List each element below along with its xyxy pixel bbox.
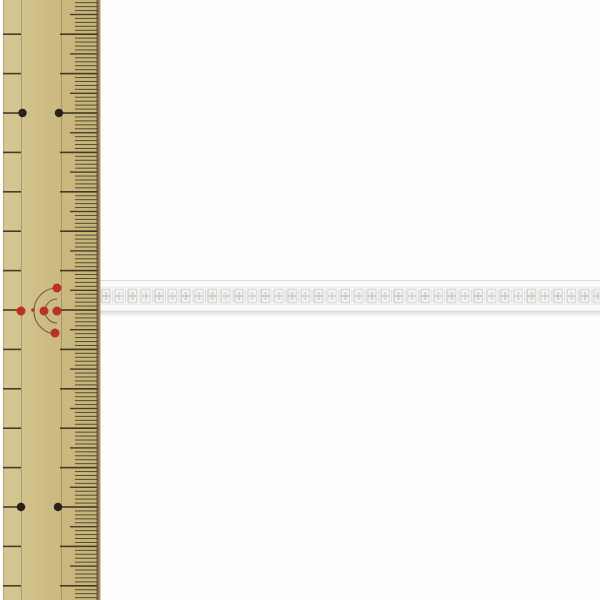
- ruler-mm-tick: [75, 463, 97, 464]
- ruler-mm-tick: [75, 176, 97, 177]
- lace-motif: [471, 289, 483, 302]
- ruler-right-edge-dark: [97, 0, 99, 600]
- lace-motif: [378, 289, 390, 302]
- lace-motif: [511, 289, 523, 302]
- ribbon-pattern: [99, 289, 600, 302]
- ruler-cm-leftline: [3, 73, 21, 75]
- red-dot: [40, 307, 49, 316]
- ruler-cm-leftline: [3, 152, 21, 154]
- ruler-mm-tick: [75, 534, 97, 535]
- ruler-mm-tick: [75, 542, 97, 543]
- black-dot: [17, 503, 25, 511]
- ruler-halfcm-tick: [70, 526, 97, 527]
- ruler-halfcm-tick: [70, 408, 97, 409]
- black-dot: [55, 109, 63, 117]
- lace-motif: [484, 289, 496, 302]
- ruler-mm-tick: [75, 6, 97, 7]
- ruler-mm-tick: [75, 432, 97, 433]
- ruler-mm-tick: [75, 266, 97, 267]
- ruler-halfcm-tick: [70, 368, 97, 369]
- ruler-mm-tick: [75, 558, 97, 559]
- ribbon-top-band: [98, 281, 600, 288]
- lace-motif: [192, 289, 204, 302]
- ruler-mm-tick: [75, 168, 97, 169]
- ruler-halfcm-tick: [70, 329, 97, 330]
- ruler-mm-tick: [75, 124, 97, 125]
- wooden-ruler: [3, 0, 100, 600]
- ruler-mm-tick: [75, 199, 97, 200]
- ruler-mm-tick: [75, 443, 97, 444]
- lace-motif: [444, 289, 456, 302]
- lace-motif: [218, 289, 230, 302]
- ruler-mm-tick: [75, 278, 97, 279]
- ruler-mm-tick: [75, 514, 97, 515]
- ruler-mm-tick: [75, 325, 97, 326]
- lace-motif: [125, 289, 137, 302]
- lace-motif: [245, 289, 257, 302]
- product-photo: [0, 0, 600, 600]
- ruler-mm-tick: [75, 254, 97, 255]
- ruler-cm-tick: [60, 506, 97, 508]
- ruler-mm-tick: [75, 451, 97, 452]
- lace-motif: [298, 289, 310, 302]
- ruler-mm-tick: [75, 65, 97, 66]
- ruler-mm-tick: [75, 420, 97, 421]
- ruler-mm-tick: [75, 436, 97, 437]
- ruler-mm-tick: [75, 491, 97, 492]
- ruler-mm-tick: [75, 333, 97, 334]
- ruler-mm-tick: [75, 42, 97, 43]
- ruler-mm-tick: [75, 239, 97, 240]
- ruler-mm-tick: [75, 69, 97, 70]
- lace-motif: [405, 289, 417, 302]
- ruler-mm-tick: [75, 227, 97, 228]
- red-dot: [53, 284, 62, 293]
- lace-motif: [391, 289, 403, 302]
- ruler-mm-tick: [75, 321, 97, 322]
- ruler-cm-tick: [60, 152, 97, 154]
- ruler-cm-leftline: [3, 546, 21, 548]
- lace-motif: [325, 289, 337, 302]
- ruler-mm-tick: [75, 384, 97, 385]
- ruler-mm-tick: [75, 235, 97, 236]
- ruler-mm-tick: [75, 258, 97, 259]
- ruler-mm-tick: [75, 522, 97, 523]
- ruler-left-edge: [3, 0, 4, 600]
- ruler-mm-tick: [75, 22, 97, 23]
- ruler-mm-tick: [75, 589, 97, 590]
- ruler-mm-tick: [75, 581, 97, 582]
- ruler-mm-tick: [75, 77, 97, 78]
- ruler-mm-tick: [75, 404, 97, 405]
- ruler-mm-tick: [75, 471, 97, 472]
- ruler-mm-tick: [75, 400, 97, 401]
- ruler-mm-tick: [75, 85, 97, 86]
- ruler-mm-tick: [75, 120, 97, 121]
- ruler-cm-tick: [60, 33, 97, 35]
- ruler-mm-tick: [75, 286, 97, 287]
- black-dot: [54, 503, 62, 511]
- ruler-cm-leftline: [3, 349, 21, 351]
- ruler-mm-tick: [75, 424, 97, 425]
- ruler-mm-tick: [75, 10, 97, 11]
- lace-motif: [139, 289, 151, 302]
- ruler-cm-leftline: [3, 467, 21, 469]
- ruler-mm-tick: [75, 49, 97, 50]
- ruler-mm-tick: [75, 195, 97, 196]
- ruler-mm-tick: [75, 373, 97, 374]
- ruler-halfcm-tick: [70, 447, 97, 448]
- ruler-mm-tick: [75, 483, 97, 484]
- lace-motif: [165, 289, 176, 302]
- lace-motif: [577, 289, 589, 302]
- ruler-mm-tick: [75, 317, 97, 318]
- black-dot: [18, 109, 26, 117]
- ruler-mm-tick: [75, 46, 97, 47]
- ruler-mm-tick: [75, 554, 97, 555]
- ruler-mm-tick: [75, 109, 97, 110]
- ruler-mm-tick: [75, 392, 97, 393]
- lace-motif: [311, 289, 323, 302]
- ribbon-top-edge: [98, 280, 600, 281]
- ruler-mm-tick: [75, 365, 97, 366]
- ruler-mm-tick: [75, 26, 97, 27]
- ruler-mm-tick: [75, 116, 97, 117]
- ruler-mm-tick: [75, 341, 97, 342]
- ruler-halfcm-tick: [70, 14, 97, 15]
- ruler-mm-tick: [75, 518, 97, 519]
- ruler-mm-tick: [75, 530, 97, 531]
- lace-motif: [365, 289, 377, 302]
- ruler-cm-leftline: [3, 112, 21, 114]
- ruler-mm-tick: [75, 573, 97, 574]
- ruler-mm-tick: [75, 376, 97, 377]
- ruler-cm-tick: [60, 270, 97, 272]
- ruler-mm-tick: [75, 577, 97, 578]
- ruler-cm-leftline: [3, 427, 21, 429]
- ruler-mm-tick: [75, 570, 97, 571]
- ruler-cm-tick: [60, 427, 97, 429]
- ruler-cm-tick: [60, 349, 97, 351]
- lace-motif: [538, 289, 550, 302]
- ruler-halfcm-tick: [70, 565, 97, 566]
- ruler-mm-tick: [75, 179, 97, 180]
- ruler-mm-tick: [75, 479, 97, 480]
- ruler-cm-leftline: [3, 191, 21, 193]
- ruler-halfcm-tick: [70, 250, 97, 251]
- ribbon-inner-line-top: [98, 287, 600, 288]
- ruler-right-edge-light: [99, 0, 101, 600]
- lace-motif: [272, 289, 284, 302]
- ruler-mm-tick: [75, 243, 97, 244]
- ruler-halfcm-tick: [70, 93, 97, 94]
- ruler-mm-tick: [75, 164, 97, 165]
- ruler-cm-leftline: [3, 270, 21, 272]
- ruler-mm-tick: [75, 101, 97, 102]
- ruler-mm-tick: [75, 302, 97, 303]
- ruler-cm-tick: [60, 191, 97, 193]
- lace-motif: [418, 289, 430, 302]
- ruler-mm-tick: [75, 262, 97, 263]
- lace-motif: [351, 289, 363, 302]
- ruler-mm-tick: [75, 160, 97, 161]
- ruler-mm-tick: [75, 30, 97, 31]
- ruler-mm-tick: [75, 380, 97, 381]
- ruler-mm-tick: [75, 337, 97, 338]
- ruler-mm-tick: [75, 345, 97, 346]
- ruler-mm-tick: [75, 97, 97, 98]
- ruler-cm-tick: [60, 585, 97, 587]
- red-dot: [17, 307, 26, 316]
- ruler-cm-leftline: [3, 33, 21, 35]
- ruler-mm-tick: [75, 38, 97, 39]
- ribbon-inner-line-bottom: [98, 304, 600, 305]
- ruler-mm-tick: [75, 361, 97, 362]
- lace-ribbon: [96, 280, 600, 317]
- ruler-mm-tick: [75, 510, 97, 511]
- ruler-halfcm-tick: [70, 132, 97, 133]
- lace-motif: [338, 289, 350, 302]
- ruler-cm-leftline: [3, 230, 21, 232]
- lace-motif: [524, 289, 536, 302]
- ruler-mm-tick: [75, 156, 97, 157]
- ruler-mm-tick: [75, 282, 97, 283]
- ruler-mm-tick: [75, 562, 97, 563]
- ruler-cm-tick: [60, 467, 97, 469]
- ruler-mm-tick: [75, 440, 97, 441]
- ruler-cm-tick: [60, 309, 97, 311]
- ruler-mm-tick: [75, 136, 97, 137]
- ruler-mm-tick: [75, 503, 97, 504]
- lace-motif: [551, 289, 563, 302]
- ruler-halfcm-tick: [70, 53, 97, 54]
- ruler-mm-tick: [75, 105, 97, 106]
- ruler-mm-tick: [75, 499, 97, 500]
- ruler-halfcm-tick: [70, 290, 97, 291]
- ruler-mm-tick: [75, 416, 97, 417]
- ruler-mm-tick: [75, 455, 97, 456]
- scene-canvas: [0, 0, 600, 600]
- ruler-mm-tick: [75, 2, 97, 3]
- ruler-mm-tick: [75, 207, 97, 208]
- ruler-halfcm-tick: [70, 211, 97, 212]
- ruler-mm-tick: [75, 412, 97, 413]
- ruler-mm-tick: [75, 81, 97, 82]
- ruler-cm-tick: [60, 73, 97, 75]
- ruler-mm-tick: [75, 313, 97, 314]
- ruler-mm-tick: [75, 495, 97, 496]
- lace-motif: [178, 289, 190, 302]
- ruler-mm-tick: [75, 89, 97, 90]
- ruler-mm-tick: [75, 353, 97, 354]
- ruler-mm-tick: [75, 550, 97, 551]
- ruler-mm-tick: [75, 298, 97, 299]
- ruler-cm-tick: [60, 546, 97, 548]
- lace-motif: [152, 289, 164, 302]
- red-dot: [53, 307, 62, 316]
- lace-motif: [431, 289, 443, 302]
- lace-motif: [205, 289, 217, 302]
- lace-motif: [564, 289, 576, 302]
- ruler-mm-tick: [75, 140, 97, 141]
- red-dot: [51, 329, 60, 338]
- ruler-cm-leftline: [3, 585, 21, 587]
- ruler-mm-tick: [75, 148, 97, 149]
- ruler-mm-tick: [75, 294, 97, 295]
- ruler-grain-line: [61, 0, 62, 600]
- ruler-mm-tick: [75, 274, 97, 275]
- ruler-mm-tick: [75, 396, 97, 397]
- lace-motif: [232, 289, 243, 302]
- ribbon-bottom-band: [98, 304, 600, 311]
- ruler-mm-tick: [75, 459, 97, 460]
- lace-motif: [285, 289, 297, 302]
- ruler-mm-tick: [75, 597, 97, 598]
- ruler-cm-tick: [60, 112, 97, 114]
- ruler-cm-tick: [60, 388, 97, 390]
- ruler-cm-leftline: [3, 388, 21, 390]
- ruler-mm-tick: [75, 223, 97, 224]
- lace-motif: [112, 289, 123, 302]
- ruler-mm-tick: [75, 203, 97, 204]
- ruler-mm-tick: [75, 475, 97, 476]
- ruler-mm-tick: [75, 306, 97, 307]
- ruler-mm-tick: [75, 538, 97, 539]
- ruler-mm-tick: [75, 219, 97, 220]
- lace-motif: [258, 289, 270, 302]
- ruler-mm-tick: [75, 246, 97, 247]
- red-dot-small: [31, 308, 35, 312]
- ruler-mm-tick: [75, 183, 97, 184]
- ruler-mm-tick: [75, 61, 97, 62]
- ruler-mm-tick: [75, 57, 97, 58]
- ribbon-shadow: [96, 311, 600, 317]
- ruler-mm-tick: [75, 187, 97, 188]
- ruler-halfcm-tick: [70, 171, 97, 172]
- ribbon-bottom-edge: [98, 311, 600, 312]
- ruler-mm-tick: [75, 144, 97, 145]
- lace-motif: [498, 289, 510, 302]
- ruler-cm-tick: [60, 230, 97, 232]
- ruler-mm-tick: [75, 215, 97, 216]
- ruler-mm-tick: [75, 128, 97, 129]
- ruler-mm-tick: [75, 357, 97, 358]
- ruler-mm-tick: [75, 593, 97, 594]
- lace-motif: [458, 289, 470, 302]
- ruler-halfcm-tick: [70, 487, 97, 488]
- ruler-mm-tick: [75, 18, 97, 19]
